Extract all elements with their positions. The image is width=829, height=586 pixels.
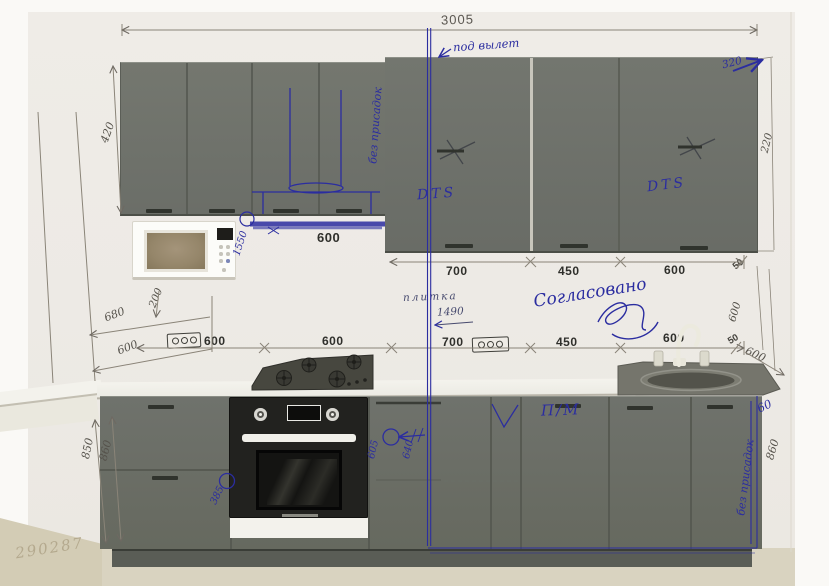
oven-display — [287, 405, 321, 421]
door-handle — [680, 246, 708, 250]
oven-knob — [326, 408, 339, 421]
toe-kick — [112, 549, 752, 567]
kitchen-drawing: 3005 под вылет 420 без присадок 600 1550… — [0, 0, 829, 586]
outlet-pin — [496, 341, 503, 348]
drawer-handle — [152, 476, 178, 480]
dim-counter-700: 700 — [442, 335, 464, 349]
note-dts-left: DTS — [416, 185, 456, 204]
door-handle — [627, 406, 653, 410]
door-handle — [707, 405, 733, 409]
microwave-button — [219, 245, 223, 249]
door-divider — [490, 397, 492, 549]
door-handle — [445, 244, 473, 248]
door-handle — [336, 209, 362, 213]
dim-hood-width: 600 — [317, 230, 340, 245]
door-handle — [273, 209, 299, 213]
microwave-display — [217, 228, 233, 240]
power-outlet — [472, 336, 510, 352]
oven — [229, 397, 368, 518]
door-divider — [186, 63, 188, 214]
door-handle — [209, 209, 235, 213]
microwave-button — [219, 252, 223, 256]
oven-knob — [254, 408, 267, 421]
microwave-button — [222, 268, 226, 272]
oven-window — [256, 450, 342, 510]
dim-counter-600a: 600 — [204, 334, 226, 348]
outlet-pin — [478, 341, 485, 348]
dim-upper-700: 700 — [446, 264, 468, 278]
dim-upper-600: 600 — [664, 263, 686, 277]
microwave-door — [144, 230, 208, 272]
note-dishwasher: П/М — [541, 400, 581, 419]
dim-counter-450: 450 — [556, 335, 578, 349]
door-divider — [251, 63, 253, 214]
drawer-divider — [100, 469, 230, 471]
note-tile: плитка — [403, 290, 458, 304]
dim-tile-height-1490: 1490 — [437, 305, 464, 318]
microwave-button — [219, 259, 223, 263]
door-handle — [560, 244, 588, 248]
oven-handle — [242, 434, 356, 442]
door-divider — [318, 63, 320, 214]
oven-filler-panel — [230, 518, 368, 538]
outlet-pin — [180, 337, 187, 344]
oven-brand-mark — [282, 514, 318, 517]
dim-total-width: 3005 — [441, 11, 474, 27]
upper-cabinet-right — [385, 57, 758, 253]
door-divider — [608, 397, 610, 549]
outlet-pin — [487, 341, 494, 348]
door-divider — [520, 397, 522, 549]
microwave-button — [226, 259, 230, 263]
door-handle — [146, 209, 172, 213]
outlet-pin — [189, 336, 196, 343]
outlet-pin — [171, 337, 178, 344]
microwave-button — [226, 252, 230, 256]
microwave-button — [226, 245, 230, 249]
microwave — [132, 221, 236, 280]
dim-counter-600c: 600 — [663, 331, 685, 345]
upper-cabinet-left — [120, 62, 388, 216]
oven-window-reflection — [267, 459, 337, 505]
door-divider — [530, 58, 533, 251]
dim-counter-600b: 600 — [322, 334, 344, 348]
power-outlet — [167, 332, 202, 349]
dim-upper-450: 450 — [558, 264, 580, 278]
door-divider — [690, 397, 692, 549]
base-cabinets — [100, 396, 762, 549]
door-divider — [618, 58, 620, 251]
drawer-handle — [148, 405, 174, 409]
door-divider — [368, 397, 370, 549]
